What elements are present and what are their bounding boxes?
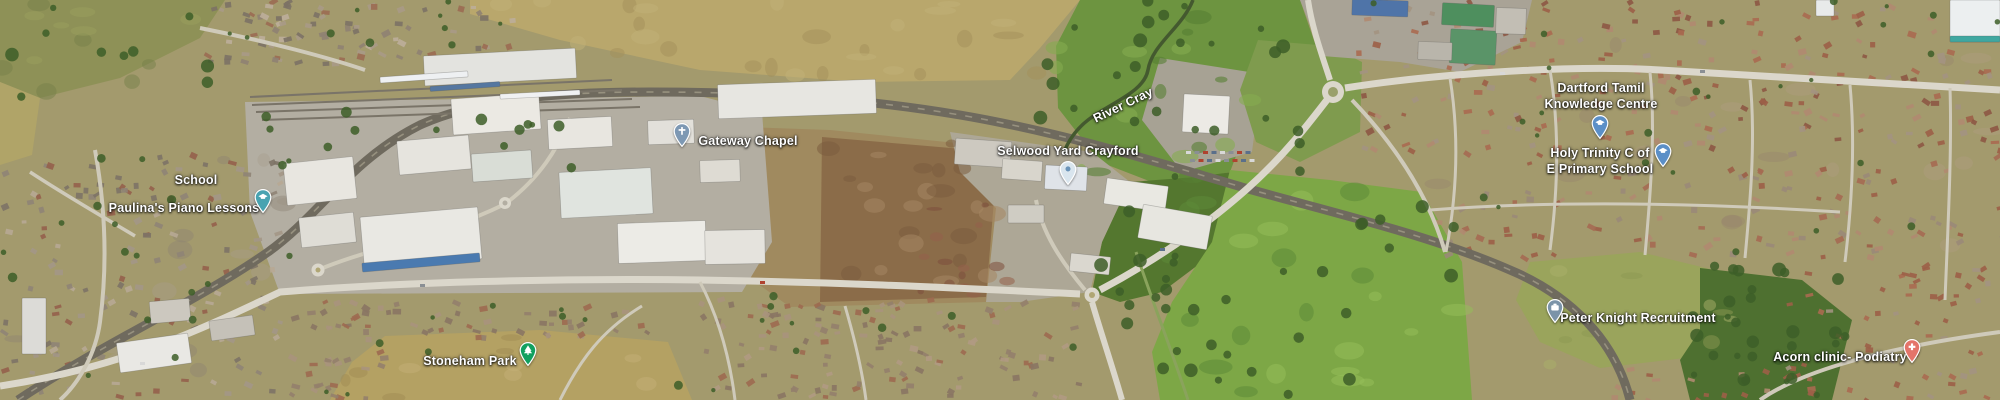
church-pin-icon[interactable] [674,123,691,152]
generic-pin-icon[interactable] [1060,161,1077,190]
education-pin-icon[interactable] [1655,143,1672,172]
education-pin-icon[interactable] [255,189,272,218]
map-label-stoneham-park[interactable]: Stoneham Park [423,353,517,369]
education-pin-icon[interactable] [1592,115,1609,144]
briefcase-pin-icon[interactable] [1547,299,1564,328]
map-label-acorn-clinic-podiatry[interactable]: Acorn clinic- Podiatry [1773,349,1907,365]
map-label-dartford-tamil-knowledge-centre[interactable]: Dartford TamilKnowledge Centre [1545,80,1658,112]
tree-pin-icon[interactable] [520,342,537,371]
health-pin-icon[interactable] [1904,339,1921,368]
aerial-imagery [0,0,2000,400]
map-label-selwood-yard-crayford[interactable]: Selwood Yard Crayford [997,143,1139,159]
satellite-map[interactable]: SchoolPaulina's Piano Lessons Gateway Ch… [0,0,2000,400]
map-label-holy-trinity-primary-school[interactable]: Holy Trinity C ofE Primary School [1547,145,1654,177]
map-label-paulinas-piano-lessons[interactable]: Paulina's Piano Lessons [109,200,260,216]
map-label-gateway-chapel[interactable]: Gateway Chapel [698,133,797,149]
map-label-peter-knight-recruitment[interactable]: Peter Knight Recruitment [1560,310,1716,326]
map-label-school: School [175,172,218,188]
